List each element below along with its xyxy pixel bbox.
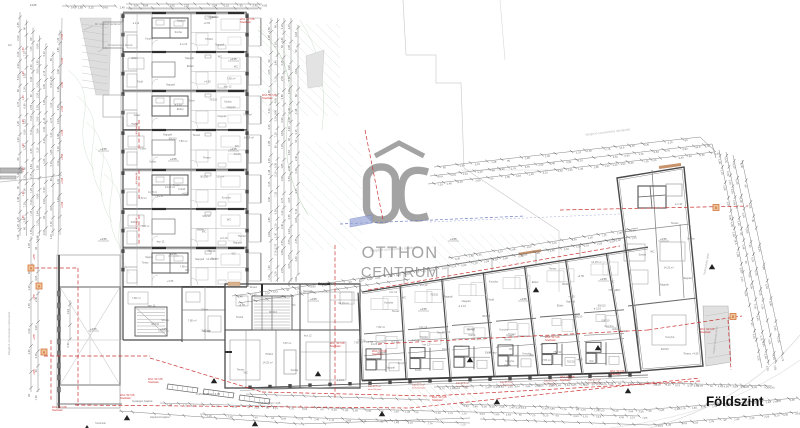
svg-text:14,6: 14,6 xyxy=(455,386,461,390)
svg-text:2,40: 2,40 xyxy=(542,406,548,410)
svg-text:4,05: 4,05 xyxy=(27,243,31,249)
svg-text:Konyha: Konyha xyxy=(489,279,498,283)
svg-text:0,90: 0,90 xyxy=(280,249,284,255)
svg-text:Konyha: Konyha xyxy=(499,327,508,331)
svg-text:1,48: 1,48 xyxy=(789,398,795,402)
svg-text:1,10: 1,10 xyxy=(49,234,53,240)
svg-text:1,48: 1,48 xyxy=(23,47,25,52)
svg-text:0,90: 0,90 xyxy=(22,129,26,135)
svg-text:+4,55: +4,55 xyxy=(34,333,36,340)
svg-text:Telekhatár: Telekhatár xyxy=(120,397,131,400)
svg-text:90/210: 90/210 xyxy=(169,136,177,140)
svg-text:1,48: 1,48 xyxy=(267,169,271,175)
svg-text:+4,55: +4,55 xyxy=(204,80,211,84)
svg-text:0,90: 0,90 xyxy=(280,117,284,123)
svg-text:5,10: 5,10 xyxy=(89,6,95,10)
svg-text:3,15: 3,15 xyxy=(42,229,46,235)
svg-text:Telekhatár: Telekhatár xyxy=(372,353,383,356)
svg-text:WC: WC xyxy=(218,55,222,59)
svg-text:1,10: 1,10 xyxy=(460,422,466,426)
svg-text:Nappali: Nappali xyxy=(303,289,312,293)
svg-text:Fürdő: Fürdő xyxy=(234,152,241,156)
svg-text:5,10: 5,10 xyxy=(29,129,33,135)
svg-text:+(15,28 Bfm)= 4,05: +(15,28 Bfm)= 4,05 xyxy=(258,401,281,405)
svg-text:1,20: 1,20 xyxy=(280,24,284,30)
svg-text:Előtér: Előtér xyxy=(613,327,620,331)
svg-text:3,64: 3,64 xyxy=(732,385,738,389)
svg-text:K-1 löké 90: K-1 löké 90 xyxy=(136,172,138,184)
svg-text:1,85: 1,85 xyxy=(56,47,60,53)
svg-text:3,64: 3,64 xyxy=(765,400,771,404)
svg-text:5,10: 5,10 xyxy=(35,147,39,153)
svg-text:Földszint: Földszint xyxy=(706,394,764,409)
svg-text:3,15: 3,15 xyxy=(687,383,693,387)
svg-text:3,64: 3,64 xyxy=(659,408,665,412)
svg-text:Wsz: 517,08: Wsz: 517,08 xyxy=(330,341,345,345)
svg-text:Konyha: Konyha xyxy=(505,359,514,363)
svg-text:7,25: 7,25 xyxy=(280,144,284,150)
svg-text:+4,55: +4,55 xyxy=(600,277,607,281)
svg-text:Előtér: Előtér xyxy=(140,147,146,150)
svg-text:1,48: 1,48 xyxy=(56,86,60,92)
svg-text:2,55: 2,55 xyxy=(29,104,33,110)
svg-text:90/210: 90/210 xyxy=(602,318,610,322)
svg-text:2,40: 2,40 xyxy=(280,37,284,43)
svg-text:+4,55: +4,55 xyxy=(34,368,36,375)
svg-text:4,05: 4,05 xyxy=(267,158,271,164)
svg-text:0,30: 0,30 xyxy=(29,115,33,121)
svg-text:2,76: 2,76 xyxy=(273,250,277,256)
svg-text:+4,55: +4,55 xyxy=(420,307,427,311)
svg-text:1,10: 1,10 xyxy=(42,117,46,123)
svg-text:0,90: 0,90 xyxy=(22,103,26,109)
svg-text:0,90: 0,90 xyxy=(56,68,60,74)
svg-text:3,64: 3,64 xyxy=(294,68,298,74)
svg-text:5,10: 5,10 xyxy=(613,409,619,413)
svg-text:Telekhatár: Telekhatár xyxy=(560,379,571,382)
svg-text:WC: WC xyxy=(402,296,406,300)
svg-text:Terasz: Terasz xyxy=(671,221,679,225)
svg-text:Wsz: 517,08: Wsz: 517,08 xyxy=(545,335,560,339)
svg-text:Előtér: Előtér xyxy=(132,57,138,60)
svg-text:1,20: 1,20 xyxy=(16,224,20,230)
svg-text:7,25: 7,25 xyxy=(530,413,536,417)
svg-text:14,6: 14,6 xyxy=(66,308,70,314)
svg-text:0,30: 0,30 xyxy=(273,209,277,215)
svg-text:3,64: 3,64 xyxy=(143,4,149,8)
svg-text:1,48: 1,48 xyxy=(294,108,298,114)
svg-text:14,6: 14,6 xyxy=(103,6,109,10)
svg-text:1,10: 1,10 xyxy=(584,382,590,386)
svg-text:WC: WC xyxy=(650,249,654,253)
svg-text:7,25: 7,25 xyxy=(273,191,277,197)
svg-text:2,76: 2,76 xyxy=(298,417,304,421)
svg-text:2,76: 2,76 xyxy=(448,411,454,415)
svg-text:+4,55: +4,55 xyxy=(61,57,64,64)
svg-text:2,40: 2,40 xyxy=(734,417,740,421)
svg-text:Szoba: Szoba xyxy=(291,368,299,372)
svg-text:3,15: 3,15 xyxy=(749,416,755,420)
svg-text:2,55: 2,55 xyxy=(35,105,39,111)
svg-text:1,48: 1,48 xyxy=(23,71,25,76)
svg-text:75/210: 75/210 xyxy=(265,352,273,356)
svg-text:Nappali: Nappali xyxy=(163,133,172,137)
svg-text:3,64: 3,64 xyxy=(294,276,298,282)
svg-text:+4,55: +4,55 xyxy=(576,357,583,361)
svg-text:Nappali: Nappali xyxy=(227,105,236,109)
svg-text:3,64: 3,64 xyxy=(254,405,260,409)
svg-text:Előtér: Előtér xyxy=(202,307,209,311)
svg-text:2,55: 2,55 xyxy=(366,409,372,413)
svg-text:+4,55: +4,55 xyxy=(100,237,107,241)
svg-text:0,30: 0,30 xyxy=(267,196,271,202)
svg-text:WC: WC xyxy=(589,359,593,363)
svg-text:7,80 m²: 7,80 m² xyxy=(243,113,252,117)
svg-text:3,64: 3,64 xyxy=(628,409,634,413)
svg-text:Konyha: Konyha xyxy=(605,324,614,328)
svg-text:1,85: 1,85 xyxy=(267,34,271,40)
svg-text:0,30: 0,30 xyxy=(29,199,33,205)
svg-text:Telekhatár: Telekhatár xyxy=(52,409,63,412)
svg-text:5,10: 5,10 xyxy=(583,414,589,418)
svg-text:14,25 m²: 14,25 m² xyxy=(148,191,157,194)
svg-text:7,80 m²: 7,80 m² xyxy=(354,341,363,345)
svg-text:3,64: 3,64 xyxy=(565,383,571,387)
svg-text:1,85: 1,85 xyxy=(494,412,500,416)
svg-text:ø 2,10: ø 2,10 xyxy=(420,283,428,287)
svg-text:Terasz: Terasz xyxy=(193,133,201,137)
svg-text:1,85: 1,85 xyxy=(405,410,411,414)
svg-text:2,55: 2,55 xyxy=(267,27,271,33)
svg-text:ø 2,10: ø 2,10 xyxy=(175,102,183,106)
svg-text:Nappali: Nappali xyxy=(177,19,186,23)
svg-text:2,40: 2,40 xyxy=(457,179,463,184)
svg-text:2,55: 2,55 xyxy=(29,148,33,154)
svg-text:4,05: 4,05 xyxy=(262,4,268,8)
svg-text:3,64: 3,64 xyxy=(479,412,485,416)
svg-text:0,90: 0,90 xyxy=(49,82,53,88)
svg-text:7,25: 7,25 xyxy=(34,395,38,401)
svg-text:OTTHON: OTTHON xyxy=(362,244,439,262)
svg-text:0,30: 0,30 xyxy=(16,51,20,57)
svg-text:3,15: 3,15 xyxy=(294,188,298,194)
svg-text:1,20: 1,20 xyxy=(16,137,20,143)
svg-text:2,55: 2,55 xyxy=(27,303,31,309)
svg-text:2,55: 2,55 xyxy=(287,214,291,220)
svg-text:Konyha: Konyha xyxy=(145,38,154,40)
svg-text:14,25 m²: 14,25 m² xyxy=(591,260,601,264)
svg-text:Szoba: Szoba xyxy=(639,252,647,256)
svg-text:hsz 12: hsz 12 xyxy=(422,342,430,346)
svg-text:hsz 12: hsz 12 xyxy=(443,330,451,334)
svg-text:1,48: 1,48 xyxy=(23,143,25,148)
svg-text:WC: WC xyxy=(202,229,206,233)
svg-text:7,80 m²: 7,80 m² xyxy=(139,197,147,200)
svg-text:2,55: 2,55 xyxy=(287,239,291,245)
svg-text:1,20: 1,20 xyxy=(580,408,586,412)
svg-text:ø 2,10: ø 2,10 xyxy=(459,304,467,308)
svg-text:2,40: 2,40 xyxy=(287,126,291,132)
svg-text:+4,55: +4,55 xyxy=(61,33,64,40)
svg-text:3,64: 3,64 xyxy=(281,416,287,420)
svg-text:ø 2,10: ø 2,10 xyxy=(510,354,518,358)
svg-text:+4,55: +4,55 xyxy=(204,21,211,25)
svg-text:0,90: 0,90 xyxy=(482,404,488,408)
svg-text:14,6: 14,6 xyxy=(596,415,602,419)
svg-text:hsz 12: hsz 12 xyxy=(304,333,312,337)
svg-text:1,10: 1,10 xyxy=(273,223,277,229)
svg-text:1,85: 1,85 xyxy=(744,385,750,389)
svg-text:1,10: 1,10 xyxy=(232,405,238,409)
svg-text:1,85: 1,85 xyxy=(692,405,698,409)
svg-text:+4,55: +4,55 xyxy=(61,81,64,88)
svg-text:2,55: 2,55 xyxy=(29,229,33,235)
svg-text:7,25: 7,25 xyxy=(29,188,33,194)
svg-text:14,6: 14,6 xyxy=(42,199,46,205)
svg-text:1,10: 1,10 xyxy=(280,210,284,216)
svg-text:ø 2,10: ø 2,10 xyxy=(675,202,683,206)
svg-text:3,64: 3,64 xyxy=(35,128,39,134)
svg-text:3,15: 3,15 xyxy=(267,181,271,187)
svg-text:+4,55: +4,55 xyxy=(577,274,584,278)
svg-text:7,25: 7,25 xyxy=(29,210,33,216)
svg-text:7,80 m²: 7,80 m² xyxy=(201,328,210,332)
svg-text:1,20: 1,20 xyxy=(42,158,46,164)
svg-text:7,80 m²: 7,80 m² xyxy=(376,325,385,329)
svg-text:2,40: 2,40 xyxy=(27,349,31,355)
svg-text:14,6: 14,6 xyxy=(521,406,527,410)
svg-text:0,90: 0,90 xyxy=(273,109,277,115)
svg-text:7,80 m²: 7,80 m² xyxy=(216,175,225,179)
svg-text:2,05: 2,05 xyxy=(169,4,175,8)
svg-text:14,6: 14,6 xyxy=(294,31,298,37)
svg-text:Fürdő: Fürdő xyxy=(415,368,422,372)
svg-text:0,30: 0,30 xyxy=(16,35,20,41)
svg-text:1,48: 1,48 xyxy=(16,196,20,202)
svg-text:1,20: 1,20 xyxy=(49,102,53,108)
svg-text:1,10: 1,10 xyxy=(408,421,414,425)
svg-text:Fürdő: Fürdő xyxy=(173,183,180,187)
svg-text:Szoba: Szoba xyxy=(224,99,232,103)
svg-text:+4,55: +4,55 xyxy=(450,237,457,241)
svg-text:Nappali: Nappali xyxy=(145,257,153,259)
svg-text:2,76: 2,76 xyxy=(42,70,46,76)
svg-text:Terasz: Terasz xyxy=(249,285,257,289)
svg-text:14,6: 14,6 xyxy=(287,228,291,234)
svg-text:75/210: 75/210 xyxy=(567,359,575,363)
svg-text:7,80 m²: 7,80 m² xyxy=(179,139,188,143)
svg-text:Wsz: 517,08: Wsz: 517,08 xyxy=(240,17,255,21)
svg-text:3,64: 3,64 xyxy=(464,404,470,408)
svg-text:5,10: 5,10 xyxy=(273,42,277,48)
svg-text:1,48: 1,48 xyxy=(23,95,25,100)
svg-text:5,10: 5,10 xyxy=(267,108,271,114)
svg-text:1,48: 1,48 xyxy=(23,191,25,196)
svg-text:0,30: 0,30 xyxy=(273,162,277,168)
svg-text:Terasz: Terasz xyxy=(392,309,400,313)
svg-text:2,05: 2,05 xyxy=(287,197,291,203)
svg-text:WC: WC xyxy=(234,65,238,69)
svg-text:hsz 12: hsz 12 xyxy=(467,328,475,332)
svg-text:1,85: 1,85 xyxy=(642,416,648,420)
svg-text:+4,55: +4,55 xyxy=(34,293,36,300)
svg-text:Nappali: Nappali xyxy=(195,257,204,261)
svg-text:Wsz: 517,08: Wsz: 517,08 xyxy=(148,377,163,381)
svg-text:Nappali: Nappali xyxy=(218,114,227,118)
svg-text:Telekhatár: Telekhatár xyxy=(148,381,159,384)
svg-text:5,10: 5,10 xyxy=(331,408,337,412)
svg-text:5,10: 5,10 xyxy=(489,405,495,409)
svg-text:14,25 m²: 14,25 m² xyxy=(664,265,674,269)
svg-text:+4,55: +4,55 xyxy=(520,297,527,301)
svg-text:2,05: 2,05 xyxy=(795,411,800,415)
svg-text:2,05: 2,05 xyxy=(56,105,60,111)
svg-text:2,05: 2,05 xyxy=(599,408,605,412)
svg-text:75/210: 75/210 xyxy=(420,335,428,339)
svg-text:7,25: 7,25 xyxy=(56,37,60,43)
svg-text:Terasz: Terasz xyxy=(142,261,150,264)
svg-text:0,30: 0,30 xyxy=(29,64,33,70)
svg-text:Szoba: Szoba xyxy=(687,237,695,241)
svg-text:2,55: 2,55 xyxy=(16,22,20,28)
svg-text:0,30: 0,30 xyxy=(42,187,46,193)
svg-text:1,48: 1,48 xyxy=(23,167,25,172)
svg-text:2,55: 2,55 xyxy=(35,92,39,98)
svg-text:2,76: 2,76 xyxy=(280,197,284,203)
svg-text:2,76: 2,76 xyxy=(16,101,20,107)
svg-text:WC: WC xyxy=(291,303,295,307)
svg-text:3,15: 3,15 xyxy=(280,60,284,66)
svg-text:1,10: 1,10 xyxy=(508,384,514,388)
svg-text:7,25: 7,25 xyxy=(182,403,188,407)
svg-text:1,85: 1,85 xyxy=(78,6,84,10)
svg-text:1,10: 1,10 xyxy=(49,132,53,138)
svg-text:3,15: 3,15 xyxy=(630,415,636,419)
svg-text:Szoba: Szoba xyxy=(175,30,183,34)
svg-text:ø 2,10: ø 2,10 xyxy=(337,378,345,382)
svg-text:5,10: 5,10 xyxy=(436,411,442,415)
svg-text:0,30: 0,30 xyxy=(42,126,46,132)
svg-text:0,90: 0,90 xyxy=(35,43,39,49)
svg-text:+4,55: +4,55 xyxy=(160,327,167,331)
svg-text:1,10: 1,10 xyxy=(56,178,60,184)
svg-text:75/210: 75/210 xyxy=(553,350,561,354)
svg-text:1,85: 1,85 xyxy=(267,140,271,146)
svg-text:90/210: 90/210 xyxy=(200,174,208,178)
svg-text:Fürdő: Fürdő xyxy=(487,298,494,302)
svg-text:+4,55: +4,55 xyxy=(568,294,575,298)
svg-text:ø 2,10: ø 2,10 xyxy=(180,42,188,46)
svg-text:2,05: 2,05 xyxy=(35,235,39,241)
svg-text:2,05: 2,05 xyxy=(42,138,46,144)
svg-text:hsz 12: hsz 12 xyxy=(390,290,398,294)
svg-text:Nappali: Nappali xyxy=(566,300,575,304)
svg-text:90/210: 90/210 xyxy=(598,303,606,307)
svg-text:3,64: 3,64 xyxy=(525,384,531,388)
svg-text:2,76: 2,76 xyxy=(49,117,53,123)
svg-text:90/210: 90/210 xyxy=(151,322,159,326)
svg-text:2,76: 2,76 xyxy=(428,421,434,425)
svg-text:0,90: 0,90 xyxy=(294,168,298,174)
svg-text:3,64: 3,64 xyxy=(287,176,291,182)
svg-text:Terasz: Terasz xyxy=(134,114,142,117)
svg-text:90/210: 90/210 xyxy=(202,214,210,218)
svg-text:2,40: 2,40 xyxy=(294,155,298,161)
svg-text:Terasz: Terasz xyxy=(504,338,512,342)
svg-text:Nappali: Nappali xyxy=(386,365,395,369)
svg-text:Telekhatár: Telekhatár xyxy=(700,331,711,334)
svg-text:3,64: 3,64 xyxy=(287,150,291,156)
svg-text:K-1 löké 90: K-1 löké 90 xyxy=(136,122,138,134)
svg-text:4,2: 4,2 xyxy=(8,43,12,47)
svg-text:4,05: 4,05 xyxy=(601,382,607,386)
svg-text:0,30: 0,30 xyxy=(56,160,60,166)
svg-text:+4,55: +4,55 xyxy=(167,279,174,283)
svg-text:WC: WC xyxy=(227,218,231,222)
svg-text:2,05: 2,05 xyxy=(287,44,291,50)
svg-text:7,25: 7,25 xyxy=(267,265,271,271)
svg-text:K-1 löké 90: K-1 löké 90 xyxy=(136,217,138,229)
svg-text:2,05: 2,05 xyxy=(287,254,291,260)
svg-text:75/210: 75/210 xyxy=(430,292,438,296)
svg-text:1,85: 1,85 xyxy=(280,94,284,100)
svg-text:Nappali: Nappali xyxy=(185,56,194,60)
svg-text:7,80 m²: 7,80 m² xyxy=(283,341,292,345)
svg-text:2,55: 2,55 xyxy=(538,384,544,388)
svg-text:2,05: 2,05 xyxy=(35,116,39,122)
svg-text:Előtér: Előtér xyxy=(187,64,194,68)
svg-text:1,85: 1,85 xyxy=(280,163,284,169)
svg-text:5,10: 5,10 xyxy=(693,420,699,424)
svg-text:Wsz: 517,08: Wsz: 517,08 xyxy=(262,93,277,97)
svg-text:Konyha: Konyha xyxy=(384,300,393,304)
svg-text:1,85: 1,85 xyxy=(49,149,53,155)
svg-text:7,25: 7,25 xyxy=(287,107,291,113)
svg-text:2,40: 2,40 xyxy=(16,63,20,69)
svg-text:4,05: 4,05 xyxy=(783,412,789,416)
svg-text:+4,55: +4,55 xyxy=(182,191,189,195)
svg-text:Nappali: Nappali xyxy=(166,83,175,87)
svg-text:5,10: 5,10 xyxy=(16,75,20,81)
svg-text:Előtér: Előtér xyxy=(532,280,539,284)
svg-text:Wsz: 517,08: Wsz: 517,08 xyxy=(120,393,135,397)
svg-text:75/210: 75/210 xyxy=(155,194,163,198)
svg-text:1,20: 1,20 xyxy=(22,86,26,92)
svg-text:Telekhatár: Telekhatár xyxy=(262,97,273,100)
svg-text:Wsz: 517,08: Wsz: 517,08 xyxy=(52,405,67,409)
svg-text:Gyalogos bejárat: Gyalogos bejárat xyxy=(132,399,153,403)
svg-text:4,05: 4,05 xyxy=(267,124,271,130)
svg-text:1,48: 1,48 xyxy=(56,133,60,139)
svg-text:Előtér: Előtér xyxy=(504,363,511,367)
svg-text:Konyha: Konyha xyxy=(398,361,407,365)
svg-text:1,85: 1,85 xyxy=(571,383,577,387)
svg-text:Wsz: 517,08: Wsz: 517,08 xyxy=(610,369,625,373)
svg-text:1,48: 1,48 xyxy=(556,383,562,387)
svg-text:4,05: 4,05 xyxy=(724,384,730,388)
svg-text:Nappali: Nappali xyxy=(208,15,217,19)
svg-text:+4,55: +4,55 xyxy=(230,57,237,61)
svg-text:0,90: 0,90 xyxy=(35,193,39,199)
svg-text:4,05: 4,05 xyxy=(273,97,277,103)
svg-text:3,15: 3,15 xyxy=(543,413,549,417)
svg-text:hsz 12: hsz 12 xyxy=(148,303,156,307)
svg-text:4,05: 4,05 xyxy=(287,263,291,269)
svg-text:2,40: 2,40 xyxy=(393,409,399,413)
svg-text:90/210: 90/210 xyxy=(574,315,582,319)
svg-text:75/210: 75/210 xyxy=(207,249,215,253)
svg-text:Fürdő: Fürdő xyxy=(469,333,476,337)
